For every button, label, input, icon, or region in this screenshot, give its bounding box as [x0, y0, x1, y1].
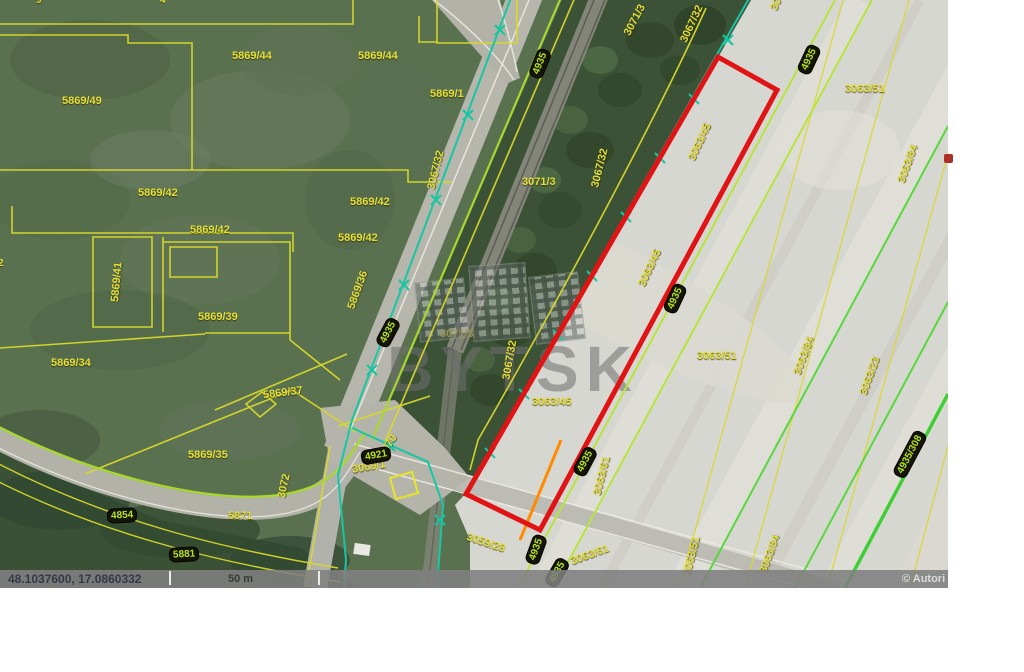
footer-bar: 48.1037600, 17.0860332 50 m © Autori: [0, 570, 948, 588]
road-badge: 4854: [108, 508, 137, 522]
parcel-label: 5869/39: [198, 311, 238, 323]
parcel-label: 5869/49: [62, 95, 102, 107]
red-marker-dot: [944, 154, 953, 163]
parcel-label: 9: [36, 0, 42, 6]
gis-app-window: BYTSK: [0, 0, 1024, 672]
road-badge: 5881: [170, 547, 199, 561]
parcel-label: 5869/44: [358, 50, 398, 62]
parcel-label: 5869/42: [338, 232, 378, 244]
parcel-label: 5869/34: [51, 357, 91, 369]
parcel-label: 2: [0, 258, 4, 269]
copyright-text: © Autori: [902, 573, 945, 585]
parcel-label: 3063/45: [532, 396, 572, 408]
parcel-label: 5869/35: [188, 449, 228, 461]
parcel-label: 5869/44: [232, 50, 272, 62]
scale-tick: [169, 571, 171, 585]
parcel-label: 3071/3: [440, 328, 474, 340]
parcel-label: 4: [160, 0, 166, 6]
parcel-label: 3071/3: [522, 176, 556, 188]
map-viewport[interactable]: BYTSK: [0, 0, 948, 588]
parcel-label: 5869/42: [138, 187, 178, 199]
boundary-lines-layer: [0, 0, 948, 588]
scale-tick: [318, 571, 320, 585]
parcel-label: 3063/51: [845, 83, 885, 95]
parcel-label: 5869/1: [430, 88, 464, 100]
parcel-label: 3063/51: [697, 350, 737, 362]
coordinates-readout: 48.1037600, 17.0860332: [8, 572, 141, 586]
parcel-label: 5869/42: [350, 196, 390, 208]
parcel-label: 5871: [228, 510, 252, 522]
highlight-polygon: [466, 57, 777, 530]
parcel-label: 5869/42: [190, 224, 230, 236]
scale-label: 50 m: [228, 573, 253, 585]
